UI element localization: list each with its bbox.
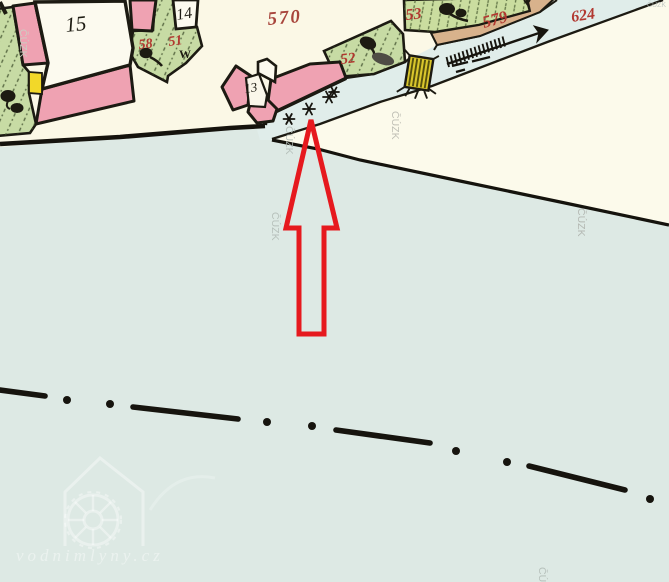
svg-text:ČÚZK: ČÚZK	[269, 212, 282, 241]
svg-text:ČÚZK: ČÚZK	[283, 126, 296, 155]
svg-text:ČÚZK: ČÚZK	[536, 567, 549, 582]
svg-text:14: 14	[175, 5, 193, 24]
svg-text:ČÚZK: ČÚZK	[575, 208, 588, 237]
svg-text:15: 15	[64, 11, 87, 37]
svg-text:ČÚZK: ČÚZK	[389, 111, 402, 140]
svg-text:W: W	[179, 47, 191, 61]
svg-text:53: 53	[405, 5, 423, 24]
svg-text:570: 570	[267, 6, 303, 30]
svg-text:vodnimlyny.cz: vodnimlyny.cz	[16, 546, 164, 565]
svg-text:52: 52	[340, 50, 357, 68]
svg-text:58: 58	[138, 37, 153, 53]
svg-text:ČÚZK: ČÚZK	[647, 0, 666, 9]
svg-text:ČÚZK: ČÚZK	[17, 29, 30, 58]
